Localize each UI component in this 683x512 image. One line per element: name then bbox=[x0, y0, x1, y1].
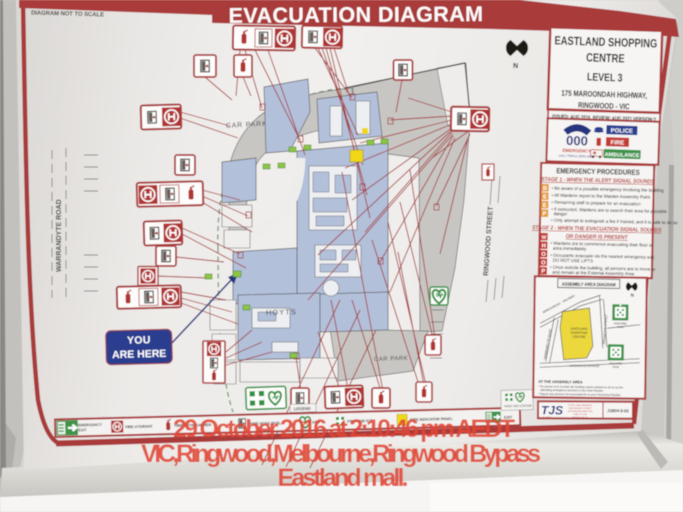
svg-text:000: 000 bbox=[566, 133, 588, 149]
svg-text:P: P bbox=[541, 269, 545, 275]
svg-text:Eastland mall.: Eastland mall. bbox=[278, 464, 409, 492]
svg-text:FIRE: FIRE bbox=[611, 140, 625, 146]
svg-text:RINGWOOD BYPASS: RINGWOOD BYPASS bbox=[570, 364, 600, 368]
svg-text:POLICE: POLICE bbox=[611, 128, 634, 135]
svg-text:ALEXANDRIA NSW 2015: ALEXANDRIA NSW 2015 bbox=[568, 410, 594, 413]
svg-text:RINGWOOD - VIC: RINGWOOD - VIC bbox=[578, 101, 630, 112]
svg-text:Area: Area bbox=[612, 365, 619, 369]
svg-text:YOU: YOU bbox=[127, 334, 151, 347]
svg-text:FIRST AID STATION: FIRST AID STATION bbox=[504, 404, 532, 409]
svg-text:EXIT: EXIT bbox=[78, 428, 87, 432]
svg-text:www.tjs.com.au: www.tjs.com.au bbox=[572, 416, 588, 419]
svg-text:Area: Area bbox=[617, 325, 624, 329]
svg-text:CAR PARK: CAR PARK bbox=[374, 356, 408, 363]
svg-text:danger: danger bbox=[554, 211, 568, 216]
svg-text:area immediately: area immediately bbox=[553, 246, 587, 252]
svg-text:J1804-3-02: J1804-3-02 bbox=[607, 408, 629, 413]
svg-text:ARE HERE: ARE HERE bbox=[112, 348, 167, 361]
svg-text:CENTRE: CENTRE bbox=[572, 335, 585, 339]
svg-text:E: E bbox=[543, 203, 547, 209]
svg-text:B: B bbox=[543, 186, 547, 192]
svg-text:AMBULANCE: AMBULANCE bbox=[605, 152, 640, 159]
svg-text:EMERGENCY: EMERGENCY bbox=[78, 423, 102, 428]
svg-text:O: O bbox=[541, 260, 546, 266]
svg-text:P: P bbox=[542, 211, 546, 217]
svg-text:1300 772 100: 1300 772 100 bbox=[573, 414, 587, 416]
svg-text:TOTAL FIRE SERVICES: TOTAL FIRE SERVICES bbox=[568, 404, 593, 407]
svg-text:H: H bbox=[542, 243, 546, 249]
svg-text:AED: AED bbox=[436, 292, 443, 296]
svg-text:DO NOT USE LIFTS: DO NOT USE LIFTS bbox=[553, 258, 594, 264]
svg-text:LEGEND: LEGEND bbox=[294, 406, 311, 411]
svg-text:WARRANDYTE ROAD: WARRANDYTE ROAD bbox=[56, 199, 63, 272]
svg-text:W: W bbox=[541, 235, 546, 241]
svg-text:ASSEMBLY AREA DIAGRAM: ASSEMBLY AREA DIAGRAM bbox=[562, 281, 616, 287]
svg-text:HOYTS: HOYTS bbox=[266, 307, 297, 317]
svg-text:1300 ARDENT STREET: 1300 ARDENT STREET bbox=[568, 407, 592, 410]
svg-text:F I R E: F I R E bbox=[543, 415, 551, 419]
svg-text:N: N bbox=[631, 293, 634, 298]
svg-text:29 October 2016 at 2:10:46 pm: 29 October 2016 at 2:10:46 pm AEDT bbox=[173, 415, 515, 443]
svg-text:CENTRE: CENTRE bbox=[586, 51, 625, 66]
svg-text:EVACUATION DIAGRAM: EVACUATION DIAGRAM bbox=[229, 2, 484, 28]
svg-text:N: N bbox=[513, 63, 518, 70]
svg-text:FIRE HYDRANT: FIRE HYDRANT bbox=[125, 425, 153, 430]
svg-text:E: E bbox=[543, 194, 547, 200]
svg-text:EMERGENCY: EMERGENCY bbox=[562, 148, 591, 154]
svg-text:LEVEL 3: LEVEL 3 bbox=[587, 72, 623, 85]
svg-text:O: O bbox=[541, 252, 546, 258]
svg-text:TJS: TJS bbox=[541, 403, 563, 417]
